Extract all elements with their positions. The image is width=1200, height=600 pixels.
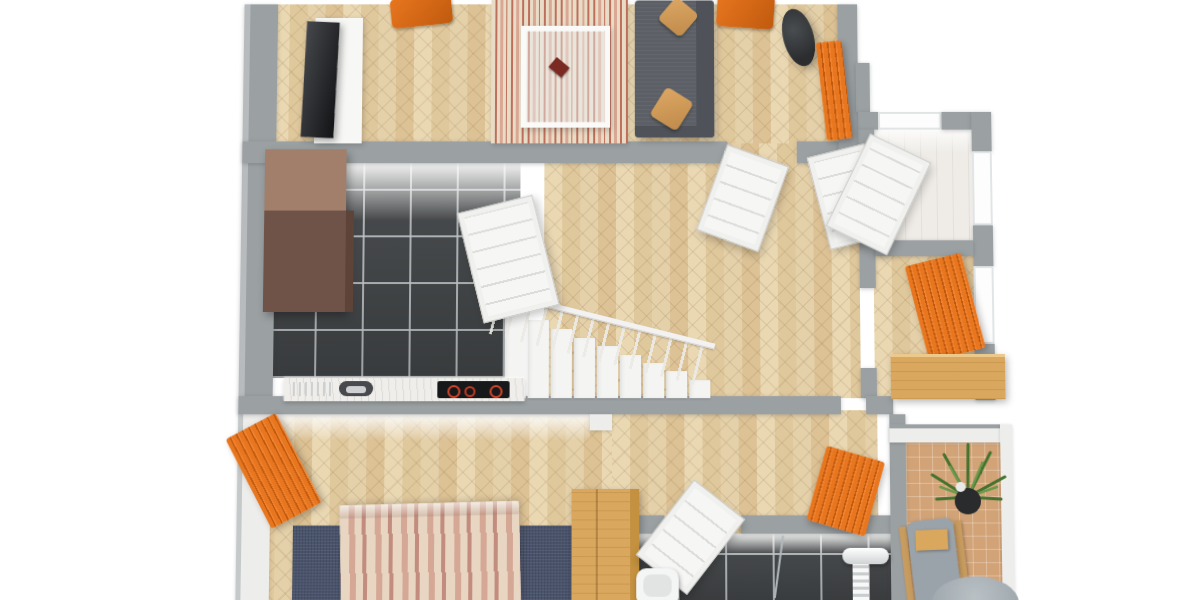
bed-striped-duvet xyxy=(339,501,521,600)
storage-room-north-window xyxy=(878,112,942,130)
hall-east-wall-c xyxy=(861,368,877,398)
sofa-backrest xyxy=(696,0,714,137)
potted-plant xyxy=(924,436,1012,529)
storage-room-north-wall-b xyxy=(941,112,971,130)
chair-wood-pillow xyxy=(915,529,948,550)
bedside-rug-left xyxy=(292,526,341,600)
cooktop xyxy=(437,381,509,398)
drainboard-lines xyxy=(293,382,335,396)
toilet-lid xyxy=(643,574,671,596)
storage-room-west-wall-stub xyxy=(856,63,870,112)
bedroom-east-wall-upper xyxy=(590,414,612,430)
burner-ring-left xyxy=(447,385,460,398)
shower-glass-screen xyxy=(774,535,820,600)
glass-coffee-table xyxy=(521,26,610,128)
right-outer-wall-a xyxy=(971,112,991,151)
burner-ring-right xyxy=(489,385,502,398)
cabinet-top xyxy=(264,149,346,210)
right-outer-wall-b xyxy=(973,225,994,266)
storage-room-north-wall-a xyxy=(858,112,878,130)
wardrobe-seam xyxy=(596,489,598,600)
burner-ring-mid xyxy=(464,386,475,397)
shower-rail-bars xyxy=(853,564,870,600)
page-background: { "scene": { "description": "3D rendered… xyxy=(0,0,1200,600)
kitchen-sink xyxy=(339,381,373,396)
shower-towel-rail xyxy=(842,548,889,564)
mid-cross-wall-stub xyxy=(866,396,893,414)
right-window-upper xyxy=(972,151,993,225)
floor-plan xyxy=(223,4,1015,600)
wall-tv xyxy=(301,21,340,138)
wooden-desk xyxy=(891,354,1006,399)
cabinet-front xyxy=(263,211,354,312)
kitchen-tall-cabinet xyxy=(263,149,347,312)
bedside-rug-right xyxy=(520,526,573,600)
orange-armchair-2 xyxy=(716,0,775,30)
sink-basin xyxy=(346,386,366,393)
wardrobe xyxy=(571,489,639,600)
toilet xyxy=(636,568,679,600)
